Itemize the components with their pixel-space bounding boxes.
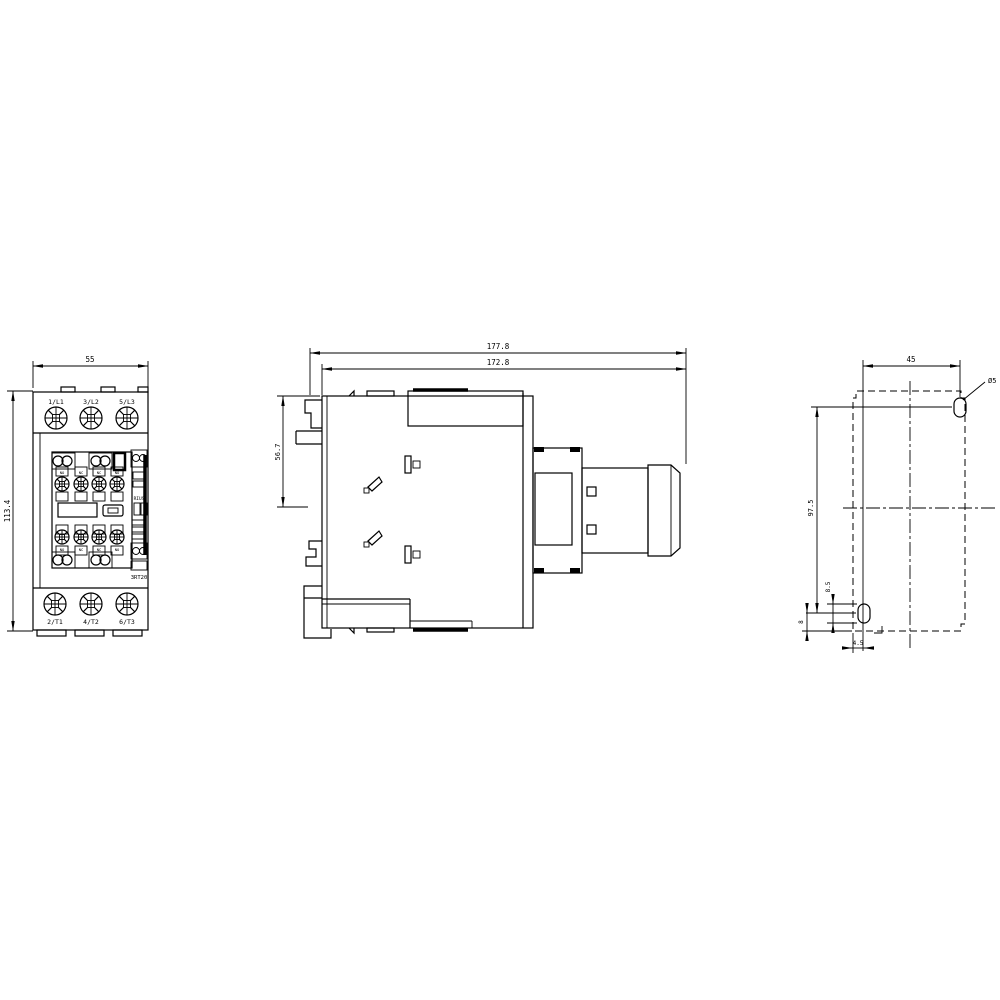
- dim-text-edge-offset: 4.5: [853, 640, 864, 647]
- dim-text-depth-total: 177.8: [487, 342, 510, 351]
- technical-drawing: 1/L1 3/L2 5/L3 NO NC NC NO: [0, 0, 1000, 1000]
- terminal-screw-icon: [45, 407, 67, 429]
- leader-line: [963, 382, 985, 400]
- bottom-tab: [113, 630, 142, 636]
- dimension-width: 55: [33, 355, 148, 388]
- brand-text: RIUS: [134, 496, 145, 502]
- right-angle-mark: [874, 626, 882, 633]
- aux-screw-icon: [92, 477, 106, 491]
- model-text: 3RT20: [131, 575, 148, 581]
- aux-screw-icon: [110, 530, 124, 544]
- top-tab: [101, 387, 115, 392]
- aux-screw-icon: [110, 477, 124, 491]
- test-button: [103, 505, 123, 516]
- bottom-tab: [37, 630, 66, 636]
- funnel-icon: [368, 477, 382, 491]
- terminal-screw-icon: [116, 407, 138, 429]
- plate-outline: [853, 391, 965, 631]
- terminal-screw-icon: [44, 593, 66, 615]
- terminal-screw-icon: [80, 593, 102, 615]
- terminal-screw-icon: [116, 593, 138, 615]
- aux-label: NO: [60, 547, 65, 552]
- dim-text-height-front: 56.7: [274, 444, 282, 461]
- aux-screw-icon: [55, 530, 69, 544]
- aux-contact-block: NO NC NC NO NO NC NC NO: [52, 452, 132, 568]
- aux-label: NC: [79, 547, 84, 552]
- aux-label: NO: [115, 547, 120, 552]
- nose-cap: [648, 465, 680, 556]
- dimension-bottom-offset: 8: [798, 604, 852, 640]
- mounting-hole-top: [954, 398, 966, 417]
- label-window: [58, 503, 97, 517]
- dim-text-spacing-v: 97.5: [807, 500, 815, 517]
- aux-label: NC: [79, 470, 84, 475]
- dimension-height: 113.4: [3, 391, 33, 631]
- dim-text-spacing-h: 45: [906, 355, 915, 364]
- dim-text-width: 55: [85, 355, 94, 364]
- dim-text-bottom-offset: 8: [798, 620, 805, 624]
- terminal-label: 4/T2: [83, 618, 99, 626]
- dim-text-height: 113.4: [3, 499, 12, 522]
- terminal-label: 1/L1: [48, 398, 64, 406]
- mounting-drill-plan: Ø5 45 97.5 8.5: [798, 355, 997, 653]
- dimension-slot-length: 8.5: [825, 581, 857, 632]
- terminal-label: 2/T1: [47, 618, 63, 626]
- aux-screw-icon: [55, 477, 69, 491]
- aux-label: NC: [97, 470, 102, 475]
- top-tab: [61, 387, 75, 392]
- front-view: 1/L1 3/L2 5/L3 NO NC NC NO: [3, 355, 148, 636]
- dimension-edge-offset: 4.5: [842, 633, 874, 653]
- side-body-outline: [322, 396, 533, 628]
- aux-screw-icon: [92, 530, 106, 544]
- aux-screw-icon: [74, 530, 88, 544]
- hole-diameter-label: Ø5: [988, 377, 996, 385]
- terminal-label: 6/T3: [119, 618, 135, 626]
- aux-label: NO: [115, 470, 120, 475]
- bottom-tab: [75, 630, 104, 636]
- coil-extension: [533, 447, 680, 573]
- dimension-hole-spacing-h: 45: [863, 355, 960, 651]
- dimension-height-front: 56.7: [274, 396, 320, 507]
- din-rail-clip: [296, 400, 331, 638]
- aux-label: NO: [60, 470, 65, 475]
- funnel-icon: [368, 531, 382, 545]
- terminal-screw-icon: [80, 407, 102, 429]
- aux-label: NC: [97, 547, 102, 552]
- dimension-depth-body: 172.8: [322, 358, 686, 395]
- top-tab: [138, 387, 148, 392]
- mounting-hole-bottom: [858, 604, 870, 623]
- side-view: 177.8 172.8 56.7: [274, 342, 686, 638]
- aux-screw-icon: [74, 477, 88, 491]
- dim-text-slot-length: 8.5: [825, 581, 832, 592]
- dim-text-depth-body: 172.8: [487, 358, 510, 367]
- terminal-label: 5/L3: [119, 398, 135, 406]
- terminal-label: 3/L2: [83, 398, 99, 406]
